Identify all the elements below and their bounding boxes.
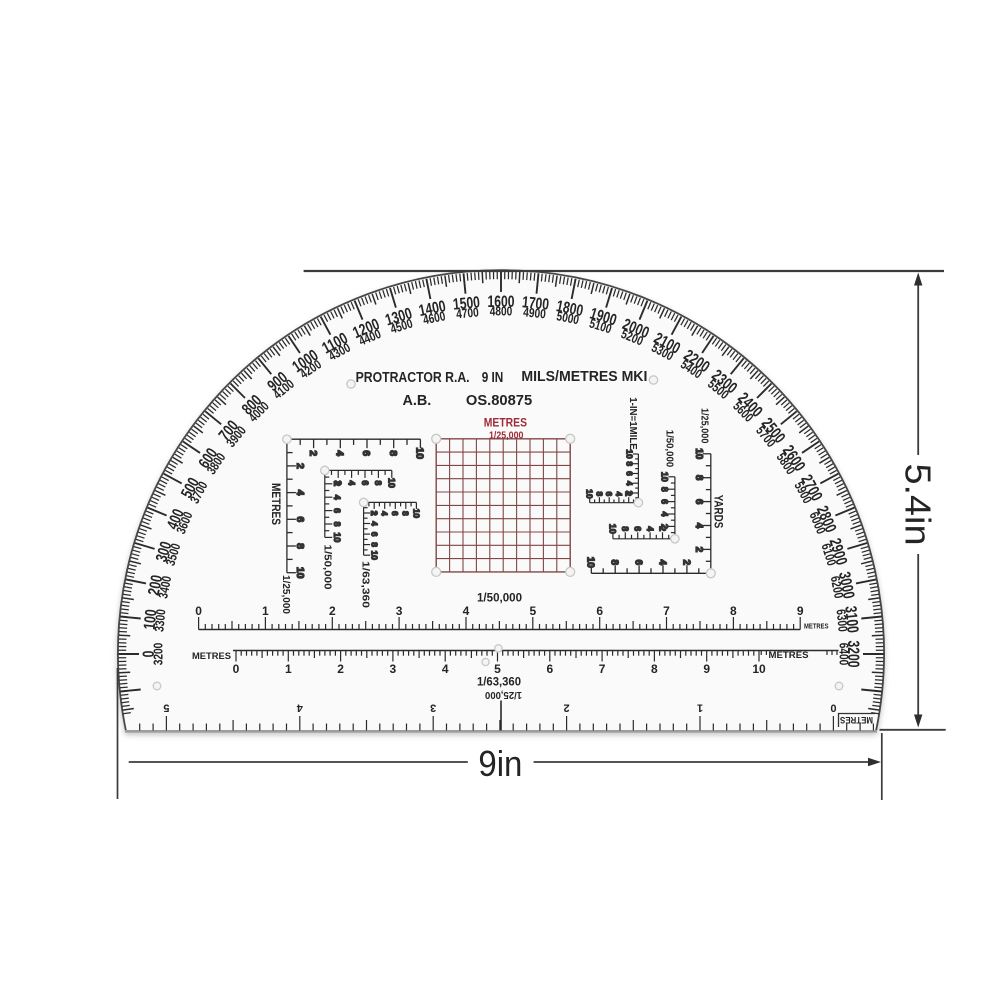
svg-text:1-IN=1MILE: 1-IN=1MILE: [627, 397, 638, 450]
svg-text:10: 10: [585, 489, 595, 499]
svg-text:9 IN: 9 IN: [482, 369, 504, 386]
svg-text:9: 9: [703, 662, 710, 676]
svg-text:5: 5: [530, 604, 537, 618]
svg-text:2: 2: [337, 662, 344, 676]
svg-text:6: 6: [360, 450, 372, 456]
svg-text:6: 6: [604, 492, 614, 497]
svg-text:3: 3: [430, 702, 436, 714]
svg-text:8: 8: [730, 604, 737, 618]
svg-text:2: 2: [307, 450, 319, 456]
svg-text:7: 7: [599, 662, 606, 676]
svg-text:8: 8: [625, 461, 635, 466]
svg-text:4: 4: [370, 521, 380, 526]
svg-text:6: 6: [546, 662, 553, 676]
svg-text:1/50,000: 1/50,000: [321, 545, 332, 590]
svg-text:2: 2: [680, 560, 691, 566]
svg-text:3: 3: [396, 604, 403, 618]
svg-text:8: 8: [693, 475, 704, 481]
svg-text:8: 8: [332, 521, 342, 526]
svg-text:10: 10: [411, 509, 421, 519]
svg-text:6: 6: [370, 532, 380, 537]
svg-text:10: 10: [585, 557, 596, 569]
svg-text:METRES: METRES: [269, 483, 281, 525]
svg-text:6: 6: [633, 526, 643, 531]
svg-text:9: 9: [797, 604, 804, 618]
svg-text:4: 4: [614, 492, 624, 497]
svg-text:8: 8: [401, 511, 411, 516]
svg-text:10: 10: [660, 472, 670, 482]
svg-text:1/50,000: 1/50,000: [477, 591, 522, 605]
svg-text:4: 4: [346, 480, 356, 485]
svg-text:4: 4: [463, 604, 470, 618]
svg-text:7: 7: [663, 604, 670, 618]
svg-text:10: 10: [414, 447, 426, 459]
svg-text:6400: 6400: [836, 643, 850, 666]
svg-text:1/25,000: 1/25,000: [485, 689, 522, 700]
svg-text:4: 4: [625, 481, 635, 486]
svg-text:2: 2: [625, 491, 635, 496]
svg-text:6: 6: [332, 508, 342, 513]
svg-text:1/25,000: 1/25,000: [280, 575, 291, 614]
svg-text:1: 1: [262, 604, 269, 618]
svg-text:10: 10: [752, 662, 766, 676]
svg-text:5: 5: [163, 702, 169, 714]
svg-text:4: 4: [380, 511, 390, 516]
svg-text:PROTRACTOR R.A.: PROTRACTOR R.A.: [356, 369, 470, 386]
svg-text:4: 4: [296, 702, 303, 714]
svg-text:8: 8: [660, 487, 670, 492]
svg-text:1: 1: [697, 702, 703, 714]
svg-text:6: 6: [390, 511, 400, 516]
svg-text:8: 8: [620, 526, 630, 531]
svg-text:4800: 4800: [490, 305, 513, 319]
svg-text:1/25,000: 1/25,000: [699, 408, 711, 444]
svg-text:9in: 9in: [478, 743, 522, 784]
svg-text:4: 4: [294, 490, 306, 496]
svg-text:2: 2: [294, 463, 306, 469]
svg-text:8: 8: [387, 450, 399, 456]
svg-text:A.B.: A.B.: [403, 392, 432, 409]
svg-text:4: 4: [332, 495, 342, 500]
svg-text:8: 8: [594, 492, 604, 497]
svg-text:4900: 4900: [523, 305, 547, 322]
svg-text:0: 0: [830, 702, 836, 714]
svg-text:3300: 3300: [152, 609, 169, 633]
svg-text:METRES: METRES: [484, 416, 527, 430]
svg-text:10: 10: [387, 478, 397, 488]
svg-text:6300: 6300: [833, 609, 850, 633]
svg-text:2: 2: [370, 511, 380, 516]
svg-text:1/63,360: 1/63,360: [477, 675, 521, 689]
svg-text:1/63,360: 1/63,360: [359, 561, 370, 609]
svg-text:8: 8: [294, 543, 306, 549]
svg-text:6: 6: [633, 560, 644, 566]
svg-text:2: 2: [332, 481, 342, 486]
svg-text:10: 10: [370, 550, 380, 560]
svg-text:8: 8: [373, 480, 383, 485]
svg-text:4: 4: [660, 511, 670, 516]
svg-text:4: 4: [693, 523, 704, 529]
svg-text:1: 1: [285, 662, 292, 676]
svg-text:4: 4: [334, 450, 346, 456]
svg-text:3200: 3200: [152, 643, 166, 666]
svg-text:6: 6: [660, 499, 670, 504]
svg-text:8: 8: [651, 662, 658, 676]
svg-text:2: 2: [660, 524, 670, 529]
svg-text:6: 6: [360, 480, 370, 485]
svg-text:0: 0: [195, 604, 202, 618]
svg-text:10: 10: [608, 524, 618, 534]
svg-text:MILS/METRES MKI: MILS/METRES MKI: [521, 368, 647, 385]
svg-text:5.4in: 5.4in: [898, 464, 939, 546]
svg-text:YARDS: YARDS: [712, 495, 726, 529]
svg-text:4: 4: [442, 662, 449, 676]
svg-text:4700: 4700: [456, 305, 480, 322]
svg-text:10: 10: [332, 532, 342, 542]
svg-text:0: 0: [233, 662, 240, 676]
svg-text:2: 2: [564, 702, 570, 714]
svg-text:1/50,000: 1/50,000: [663, 430, 675, 468]
svg-text:6: 6: [693, 499, 704, 505]
svg-text:3: 3: [390, 662, 397, 676]
svg-text:10: 10: [294, 567, 306, 579]
svg-text:6: 6: [625, 471, 635, 476]
svg-text:8: 8: [609, 560, 620, 566]
svg-text:8: 8: [370, 542, 380, 547]
svg-text:4: 4: [645, 526, 655, 531]
svg-text:10: 10: [625, 449, 635, 459]
svg-text:2: 2: [693, 547, 704, 553]
svg-text:METRES: METRES: [769, 650, 809, 661]
svg-text:METRES: METRES: [804, 624, 829, 631]
svg-text:1/25,000: 1/25,000: [489, 431, 524, 442]
svg-text:6: 6: [294, 516, 306, 522]
svg-text:4: 4: [656, 560, 667, 566]
svg-text:OS.80875: OS.80875: [466, 392, 533, 409]
svg-text:2: 2: [329, 604, 336, 618]
svg-text:6: 6: [596, 604, 603, 618]
svg-text:METRES: METRES: [192, 651, 231, 662]
svg-text:METRES: METRES: [840, 715, 873, 725]
svg-text:10: 10: [693, 448, 704, 460]
